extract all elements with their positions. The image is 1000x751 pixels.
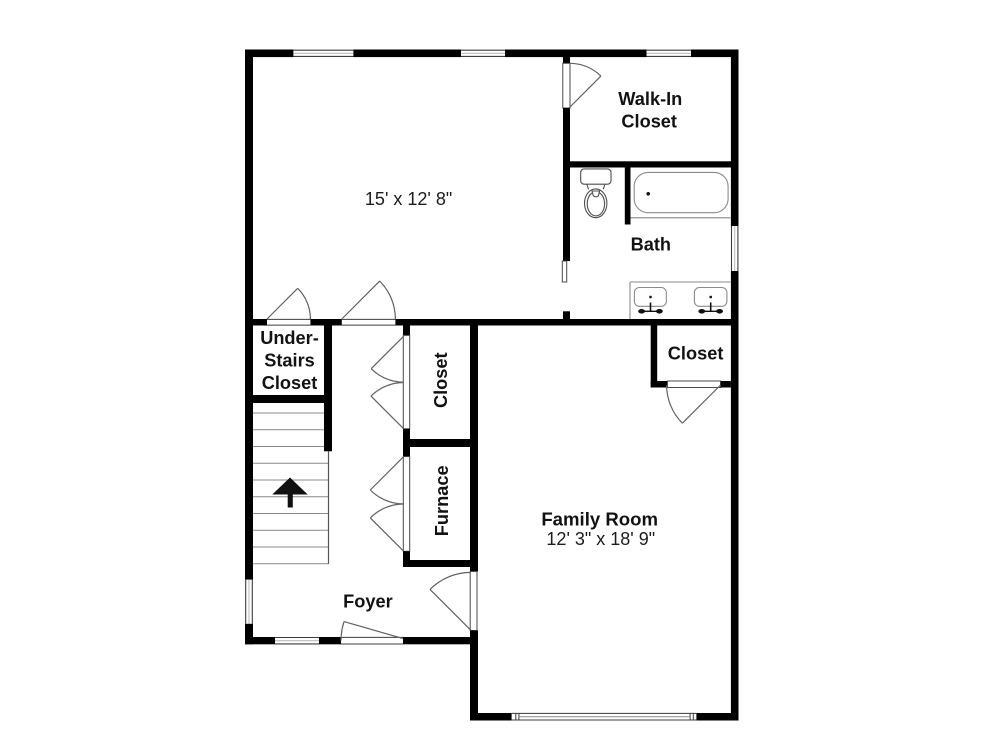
svg-text:Under-: Under-	[260, 328, 319, 348]
svg-text:Family Room: Family Room	[541, 509, 658, 530]
svg-text:12' 3" x 18' 9": 12' 3" x 18' 9"	[546, 529, 655, 549]
svg-text:Closet: Closet	[668, 344, 724, 364]
svg-text:Furnace: Furnace	[432, 465, 452, 536]
svg-text:Stairs: Stairs	[264, 351, 315, 371]
svg-text:Bath: Bath	[631, 234, 671, 254]
svg-text:Closet: Closet	[262, 373, 318, 393]
svg-text:Foyer: Foyer	[343, 591, 393, 611]
svg-text:Closet: Closet	[621, 111, 677, 131]
svg-text:Closet: Closet	[431, 352, 451, 408]
svg-text:15' x 12' 8": 15' x 12' 8"	[365, 189, 452, 209]
svg-text:Walk-In: Walk-In	[618, 89, 682, 109]
